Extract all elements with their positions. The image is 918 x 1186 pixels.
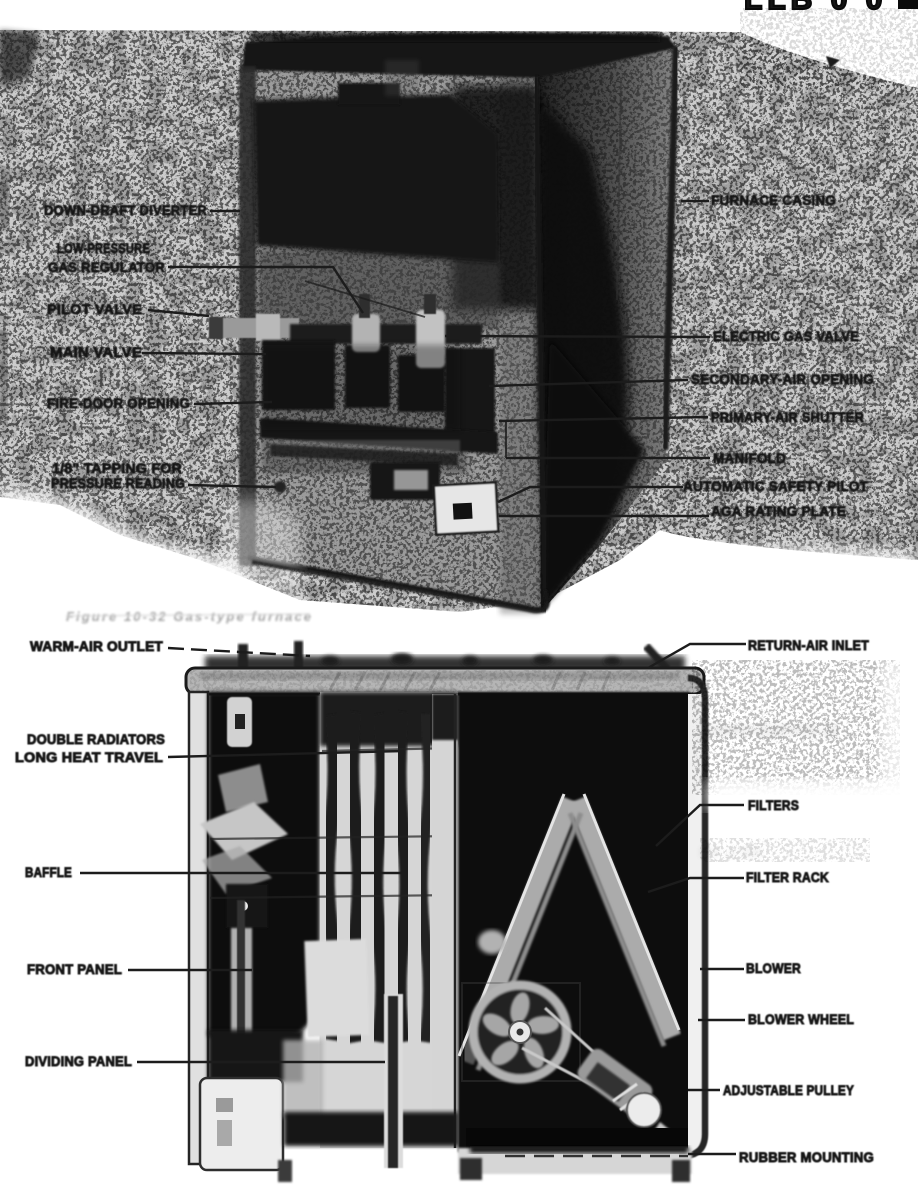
svg-text:BAFFLE: BAFFLE: [25, 865, 72, 880]
svg-text:MANIFOLD: MANIFOLD: [713, 451, 786, 466]
svg-text:RETURN-AIR INLET: RETURN-AIR INLET: [748, 638, 870, 653]
svg-text:SECONDARY-AIR OPENING: SECONDARY-AIR OPENING: [691, 372, 874, 387]
svg-text:ADJUSTABLE PULLEY: ADJUSTABLE PULLEY: [723, 1083, 854, 1098]
svg-text:PILOT VALVE: PILOT VALVE: [47, 302, 142, 317]
svg-text:DOWN-DRAFT DIVERTER: DOWN-DRAFT DIVERTER: [44, 203, 207, 218]
svg-text:FILTERS: FILTERS: [748, 798, 799, 813]
svg-text:BLOWER WHEEL: BLOWER WHEEL: [748, 1012, 854, 1027]
svg-text:FILTER RACK: FILTER RACK: [746, 870, 829, 885]
svg-text:PRIMARY-AIR SHUTTER: PRIMARY-AIR SHUTTER: [711, 410, 864, 425]
svg-text:BLOWER: BLOWER: [746, 961, 801, 976]
svg-text:DIVIDING PANEL: DIVIDING PANEL: [25, 1054, 132, 1069]
svg-text:DOUBLE RADIATORS: DOUBLE RADIATORS: [27, 732, 165, 747]
svg-text:1/8" TAPPING FOR: 1/8" TAPPING FOR: [52, 461, 182, 476]
svg-text:MAIN VALVE: MAIN VALVE: [50, 345, 142, 360]
svg-text:LONG HEAT TRAVEL: LONG HEAT TRAVEL: [15, 750, 163, 765]
svg-text:FIRE-DOOR OPENING: FIRE-DOOR OPENING: [47, 396, 190, 411]
svg-text:FURNACE CASING: FURNACE CASING: [711, 193, 836, 208]
svg-text:PRESSURE READING: PRESSURE READING: [51, 476, 185, 491]
svg-text:RUBBER MOUNTING: RUBBER MOUNTING: [739, 1150, 874, 1165]
svg-text:GAS REGULATOR: GAS REGULATOR: [48, 260, 165, 275]
svg-text:LOW-PRESSURE: LOW-PRESSURE: [57, 241, 150, 256]
svg-text:AUTOMATIC SAFETY PILOT: AUTOMATIC SAFETY PILOT: [683, 479, 869, 494]
svg-text:LLB 0 0: LLB 0 0: [744, 0, 887, 16]
svg-text:AGA RATING PLATE: AGA RATING PLATE: [711, 504, 846, 519]
svg-text:ELECTRIC GAS VALVE: ELECTRIC GAS VALVE: [713, 329, 859, 344]
svg-text:WARM-AIR OUTLET: WARM-AIR OUTLET: [30, 639, 164, 654]
svg-text:FRONT PANEL: FRONT PANEL: [27, 962, 122, 977]
